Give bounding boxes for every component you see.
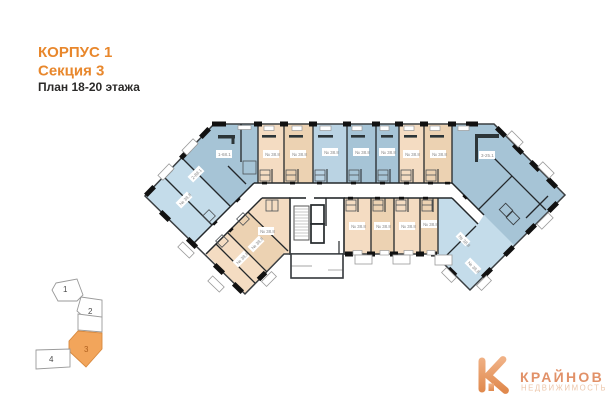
svg-text:№ 38.8: № 38.8 bbox=[376, 224, 391, 229]
svg-text:1-68.1: 1-68.1 bbox=[218, 152, 231, 157]
svg-text:№ 38.8: № 38.8 bbox=[351, 224, 366, 229]
svg-text:КРАЙНОВ: КРАЙНОВ bbox=[520, 368, 604, 385]
svg-text:№ 38.8: № 38.8 bbox=[401, 224, 416, 229]
svg-text:№ 38.8: № 38.8 bbox=[423, 222, 438, 227]
svg-text:3-25.1: 3-25.1 bbox=[481, 153, 494, 158]
svg-text:№ 38.8: № 38.8 bbox=[405, 152, 420, 157]
svg-text:Секция 3: Секция 3 bbox=[38, 63, 104, 80]
svg-text:№ 38.8: № 38.8 bbox=[381, 150, 396, 155]
svg-text:КОРПУС 1: КОРПУС 1 bbox=[38, 44, 112, 61]
svg-text:3: 3 bbox=[84, 345, 89, 354]
svg-text:№ 38.8: № 38.8 bbox=[260, 229, 275, 234]
svg-text:НЕДВИЖИМОСТЬ: НЕДВИЖИМОСТЬ bbox=[521, 384, 605, 393]
svg-text:№ 38.8: № 38.8 bbox=[355, 150, 370, 155]
svg-text:2: 2 bbox=[88, 307, 93, 316]
svg-text:№ 38.8: № 38.8 bbox=[265, 152, 280, 157]
svg-text:1: 1 bbox=[63, 285, 68, 294]
svg-text:№ 38.8: № 38.8 bbox=[292, 152, 307, 157]
svg-text:План 18-20 этажа: План 18-20 этажа bbox=[38, 80, 140, 94]
svg-text:№ 38.8: № 38.8 bbox=[432, 152, 447, 157]
svg-text:№ 38.8: № 38.8 bbox=[324, 150, 339, 155]
svg-text:4: 4 bbox=[49, 355, 54, 364]
